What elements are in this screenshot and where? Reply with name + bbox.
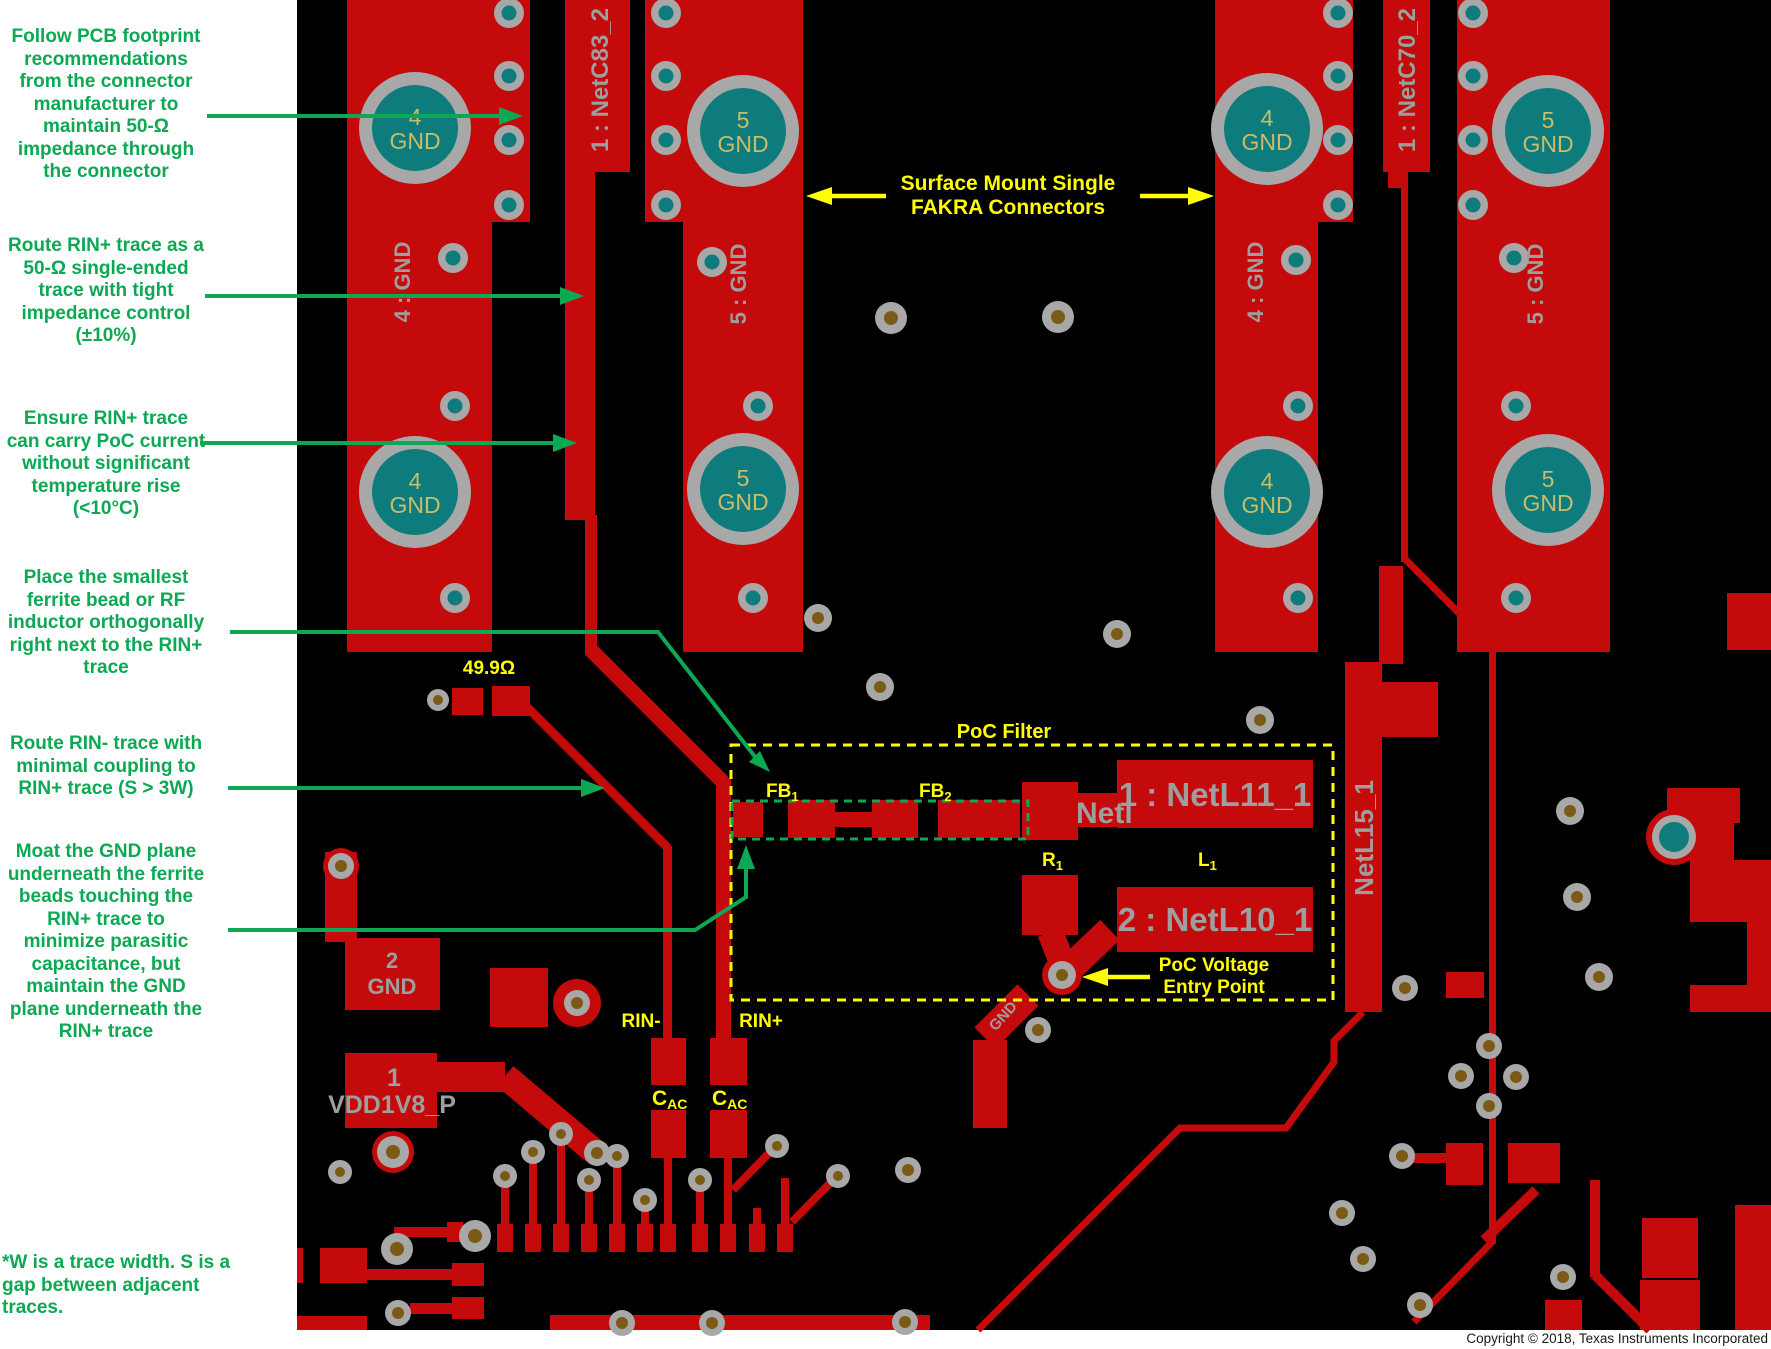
net-label-netl15: NetL15_1 bbox=[1349, 780, 1379, 896]
pcb-layout-figure: 1 : NetC83_2 1 : NetC70_2 4 : GND 5 : GN… bbox=[0, 0, 1771, 1349]
gnd-circle-name: GND bbox=[1522, 490, 1573, 516]
annotation-ensure-rin-plus: Ensure RIN+ trace can carry PoC current … bbox=[2, 408, 210, 521]
annotation-follow-pcb: Follow PCB footprint recommendations fro… bbox=[2, 26, 210, 184]
net-label-netl10: 2 : NetL10_1 bbox=[1118, 901, 1312, 938]
pin-label-4gnd-right: 4 : GND bbox=[1243, 242, 1268, 323]
copyright-text: Copyright © 2018, Texas Instruments Inco… bbox=[1466, 1331, 1768, 1346]
gnd-circle-name: GND bbox=[717, 489, 768, 515]
gnd-circle-pin: 5 bbox=[737, 465, 750, 491]
annotation-footnote: *W is a trace width. S is a gap between … bbox=[2, 1252, 264, 1320]
gnd-circle-name: GND bbox=[1522, 131, 1573, 157]
gnd-circle-name: GND bbox=[1241, 129, 1292, 155]
pad2-name: GND bbox=[368, 974, 417, 999]
gnd-circle-name: GND bbox=[389, 492, 440, 518]
gnd-circle-pin: 4 bbox=[1261, 105, 1274, 131]
pin-label-5gnd-right: 5 : GND bbox=[1523, 244, 1548, 325]
poc-entry-label-line2: Entry Point bbox=[1163, 977, 1265, 998]
gnd-circle-name: GND bbox=[389, 128, 440, 154]
pad2-pin: 2 bbox=[386, 948, 398, 973]
gnd-circle-pin: 5 bbox=[1542, 466, 1555, 492]
pad1-name: VDD1V8_P bbox=[328, 1091, 456, 1119]
annotation-route-rin-minus: Route RIN- trace with minimal coupling t… bbox=[2, 733, 210, 801]
gnd-circle-pin: 5 bbox=[737, 107, 750, 133]
gnd-circle-pin: 4 bbox=[1261, 468, 1274, 494]
annotation-place-ferrite: Place the smallest ferrite bead or RF in… bbox=[2, 567, 210, 680]
rin-plus-label: RIN+ bbox=[739, 1011, 783, 1032]
resistor-value-label: 49.9Ω bbox=[463, 658, 515, 679]
fakra-callout-line2: FAKRA Connectors bbox=[911, 196, 1105, 219]
fakra-callout-line1: Surface Mount Single bbox=[901, 172, 1116, 195]
net-label-netc83: 1 : NetC83_2 bbox=[587, 8, 614, 152]
gnd-circle-pin: 5 bbox=[1542, 107, 1555, 133]
gnd-circle-pin: 4 bbox=[409, 468, 422, 494]
pcb-artwork: 1 : NetC83_2 1 : NetC70_2 4 : GND 5 : GN… bbox=[0, 0, 1771, 1349]
pad1-pin: 1 bbox=[387, 1064, 401, 1092]
net-label-netc70: 1 : NetC70_2 bbox=[1394, 8, 1421, 152]
annotation-moat-gnd: Moat the GND plane underneath the ferrit… bbox=[2, 841, 210, 1044]
net-label-netl11: 1 : NetL11_1 bbox=[1119, 776, 1312, 813]
rin-minus-label: RIN- bbox=[621, 1011, 660, 1032]
pin-label-4gnd-left: 4 : GND bbox=[390, 242, 415, 323]
poc-entry-label-line1: PoC Voltage bbox=[1159, 955, 1270, 976]
gnd-circle-name: GND bbox=[717, 131, 768, 157]
annotation-route-rin-plus: Route RIN+ trace as a 50-Ω single-ended … bbox=[2, 235, 210, 348]
poc-filter-label: PoC Filter bbox=[957, 721, 1052, 743]
net-label-partial: Netl bbox=[1076, 797, 1133, 830]
gnd-circle-name: GND bbox=[1241, 492, 1292, 518]
pin-label-5gnd-left: 5 : GND bbox=[726, 244, 751, 325]
